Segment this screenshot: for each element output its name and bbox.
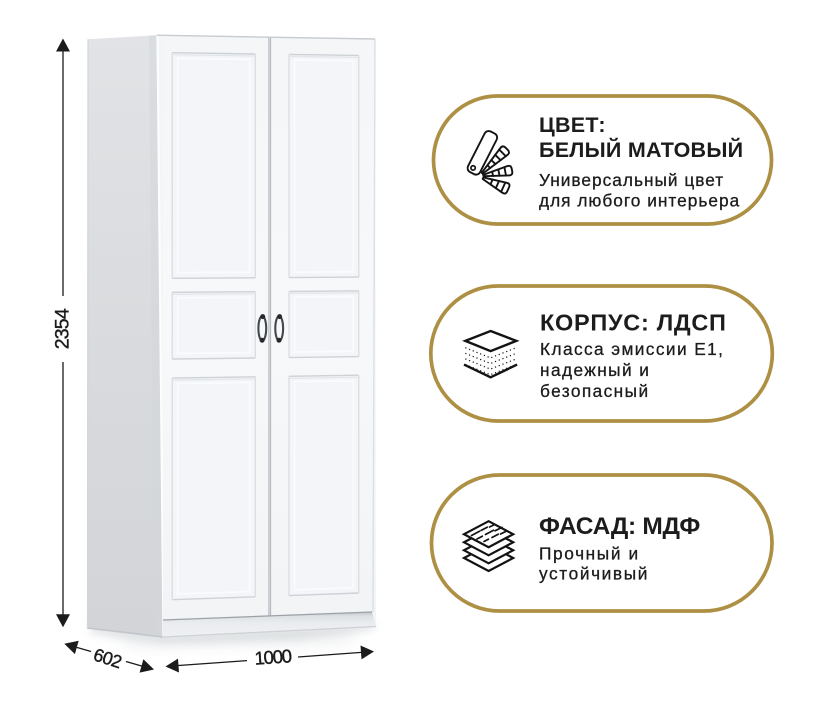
svg-text:ЦВЕТ:: ЦВЕТ: <box>539 113 606 137</box>
svg-text:надежный и: надежный и <box>540 360 650 380</box>
svg-text:Класса эмиссии Е1,: Класса эмиссии Е1, <box>540 339 724 359</box>
svg-text:для любого интерьера: для любого интерьера <box>539 191 740 211</box>
svg-text:1000: 1000 <box>254 645 293 669</box>
svg-text:Прочный и: Прочный и <box>539 544 640 564</box>
svg-text:ФАСАД: МДФ: ФАСАД: МДФ <box>539 513 700 540</box>
svg-text:КОРПУС: ЛДСП: КОРПУС: ЛДСП <box>540 310 727 336</box>
svg-text:Универсальный цвет: Универсальный цвет <box>539 170 724 190</box>
svg-text:БЕЛЫЙ МАТОВЫЙ: БЕЛЫЙ МАТОВЫЙ <box>539 137 743 162</box>
svg-text:безопасный: безопасный <box>540 381 650 401</box>
svg-text:2354: 2354 <box>52 308 74 349</box>
svg-text:устойчивый: устойчивый <box>539 564 649 584</box>
